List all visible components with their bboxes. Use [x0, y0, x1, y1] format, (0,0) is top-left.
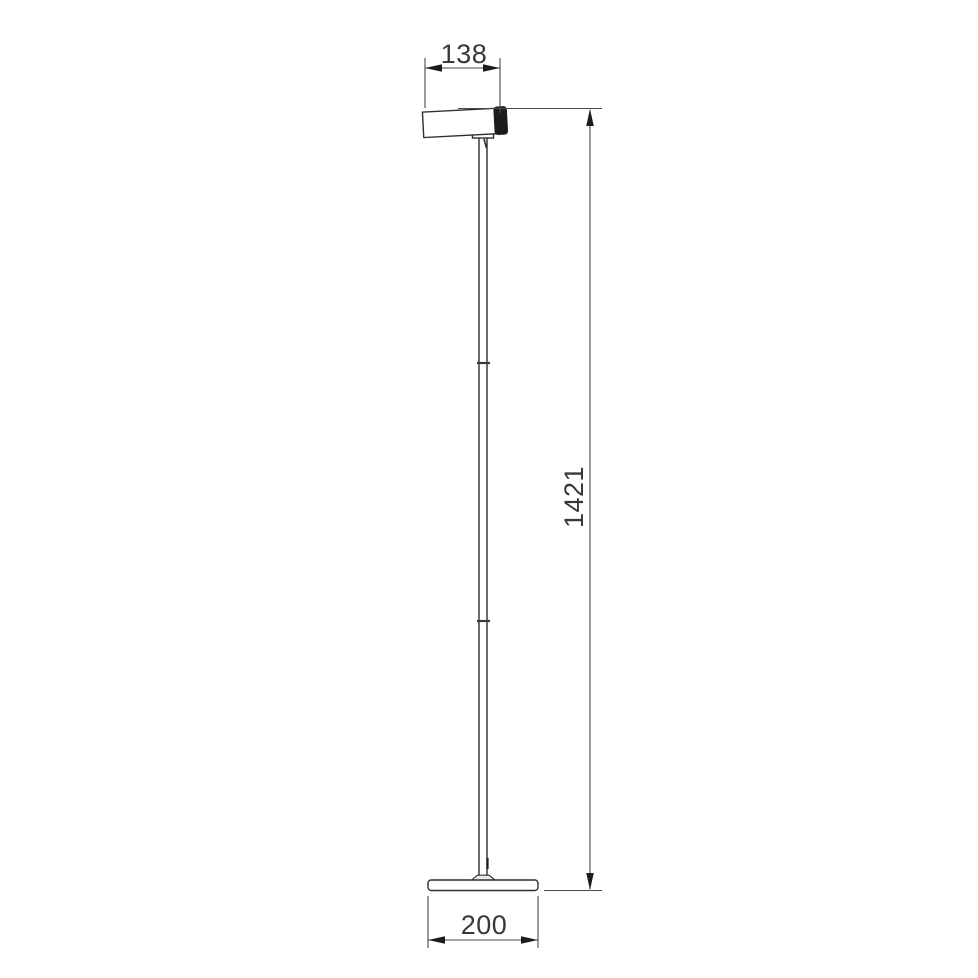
lamp-head-led-cap: [494, 107, 508, 135]
lamp-head: [422, 107, 507, 139]
arrowhead-left-icon: [428, 936, 445, 944]
arrowhead-right-icon: [521, 936, 538, 944]
arrowhead-left-icon: [425, 64, 442, 72]
dimension-base-width: 200: [428, 896, 538, 948]
lamp-base: [428, 880, 538, 891]
dimension-label-head-width: 138: [441, 39, 488, 69]
pole-base-mount: [472, 875, 496, 880]
technical-drawing-canvas: 138 1421 200: [0, 0, 978, 978]
lamp-head-body: [422, 108, 504, 138]
dimension-label-overall-height: 1421: [559, 466, 589, 528]
dimension-label-base-width: 200: [461, 910, 508, 940]
dimension-head-width: 138: [425, 39, 500, 113]
drawing-page: 138 1421 200: [0, 0, 978, 978]
floor-lamp-outline: [422, 107, 538, 891]
arrowhead-up-icon: [586, 109, 594, 126]
arrowhead-down-icon: [586, 873, 594, 890]
lamp-pole: [479, 137, 487, 877]
